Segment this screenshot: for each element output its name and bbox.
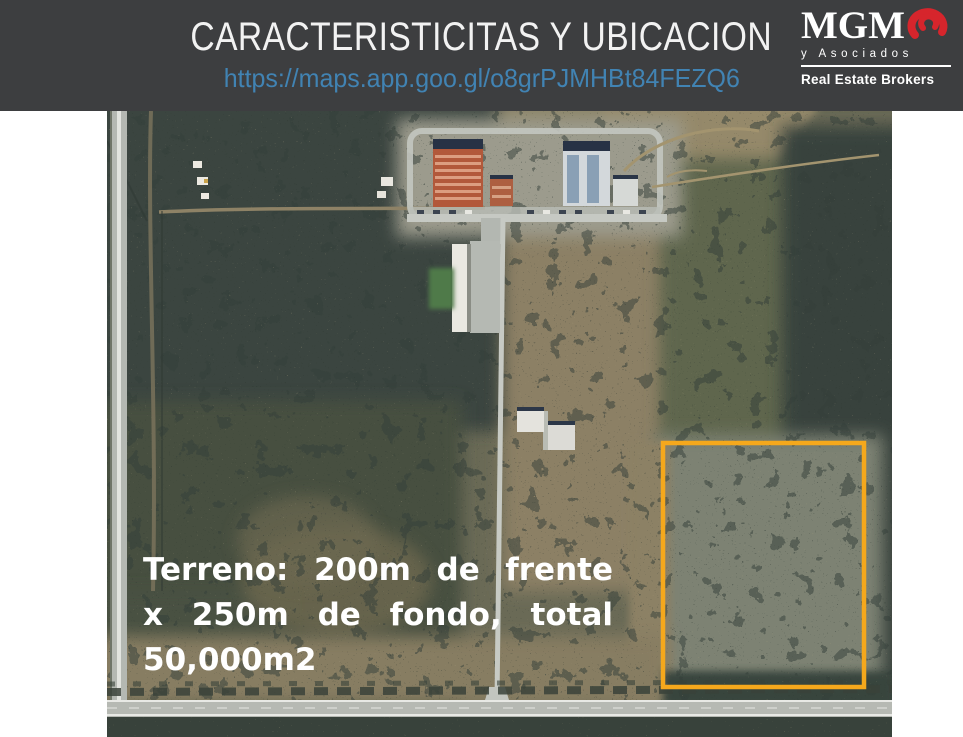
- left-road-edge: [110, 111, 112, 737]
- small-structure: [204, 179, 208, 183]
- highway-line-bottom: [107, 714, 892, 716]
- highway: [107, 682, 892, 737]
- mgm-logo: MGM y Asociados Real Estate Brokers: [801, 7, 951, 87]
- terreno-overlay: Terreno: 200m de frente x 250m de fondo,…: [143, 548, 613, 683]
- logo-row: MGM: [801, 7, 951, 47]
- highway-line-top: [107, 700, 892, 702]
- logo-name: MGM: [801, 7, 905, 45]
- logo-swirl-icon: [906, 4, 950, 46]
- left-road-centerline: [117, 111, 121, 737]
- small-structure: [381, 177, 393, 186]
- logo-subtitle: y Asociados: [801, 48, 951, 67]
- white-building: [613, 175, 638, 206]
- orange-building: [490, 175, 513, 206]
- tree-line: [107, 689, 892, 692]
- small-structure: [377, 191, 386, 198]
- blue-building: [563, 141, 610, 206]
- header-bar: CARACTERISTICITAS Y UBICACION https://ma…: [0, 0, 963, 111]
- small-structure: [201, 193, 209, 199]
- logo-tagline: Real Estate Brokers: [801, 72, 951, 87]
- satellite-map: Terreno: 200m de frente x 250m de fondo,…: [107, 111, 892, 737]
- parked-cars: [417, 210, 646, 214]
- small-structure: [193, 161, 202, 168]
- access-road: [407, 214, 667, 222]
- overlay-line-2: x 250m de fondo, total: [143, 593, 613, 638]
- overlay-line-3: 50,000m2: [143, 638, 613, 683]
- overlay-line-1: Terreno: 200m de frente: [143, 548, 613, 593]
- red-building: [433, 139, 483, 207]
- below-highway-texture: [107, 717, 892, 737]
